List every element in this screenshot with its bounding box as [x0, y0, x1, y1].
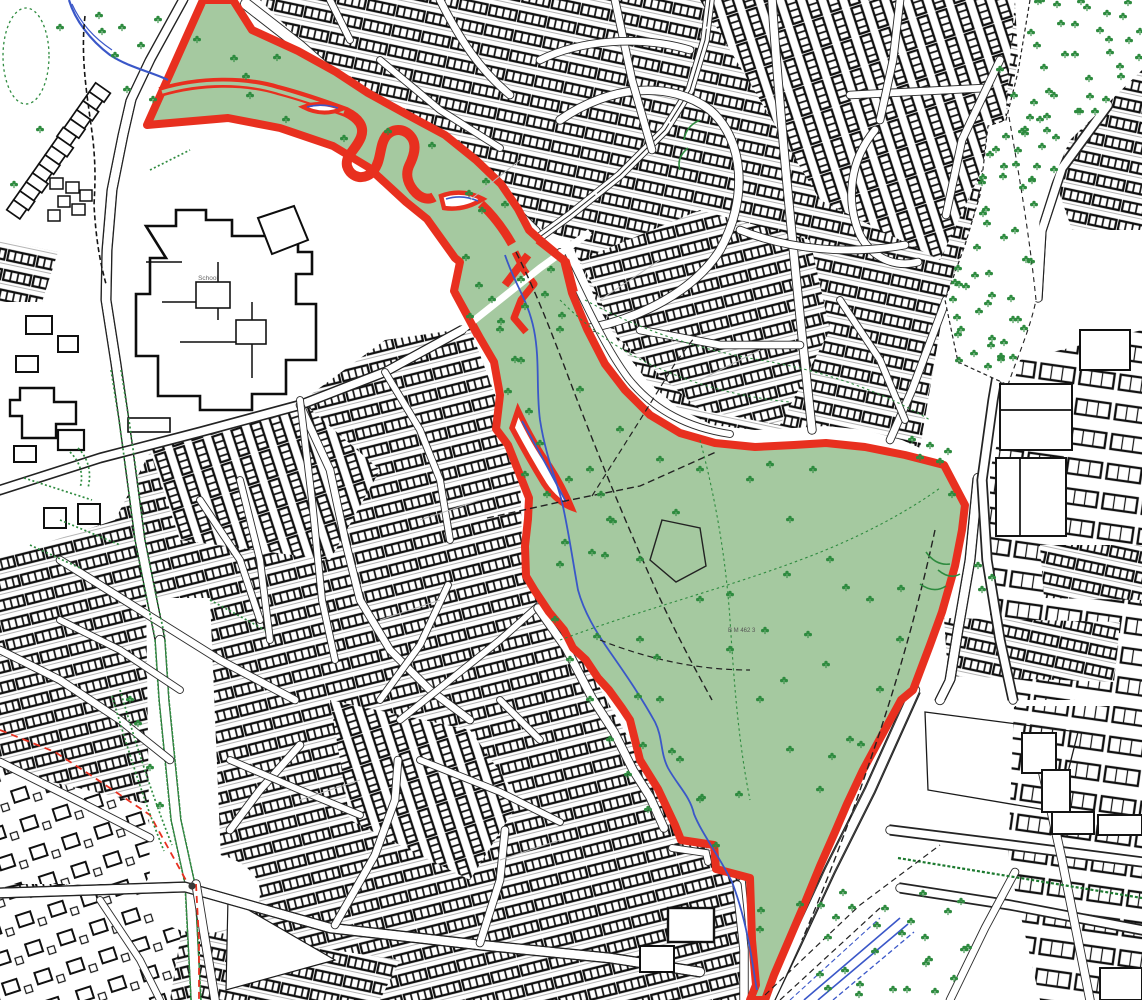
svg-text:B M 462 3: B M 462 3 [728, 628, 756, 634]
svg-text:School: School [198, 275, 218, 282]
